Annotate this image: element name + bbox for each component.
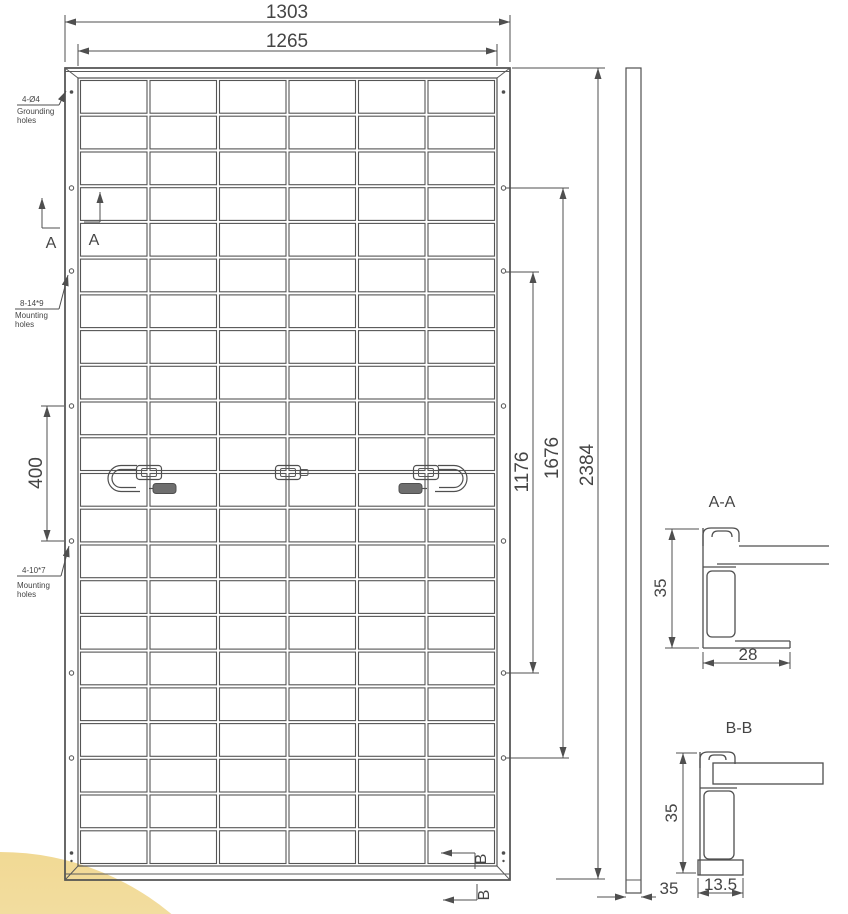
callout-grounding-line2: Grounding [17, 107, 54, 116]
dim-1676-label: 1676 [542, 437, 563, 479]
solar-cell [81, 295, 148, 328]
panel-front-view [65, 68, 510, 880]
mounting-hole [69, 539, 73, 543]
solar-cell [289, 331, 356, 364]
solar-cell [150, 616, 217, 649]
solar-cell [289, 366, 356, 399]
solar-cell [428, 152, 495, 185]
mounting-hole [69, 269, 73, 273]
frame-miter-bl [65, 866, 78, 880]
solar-cell [150, 509, 217, 542]
solar-cell [359, 295, 426, 328]
solar-cell [220, 509, 287, 542]
solar-cell [428, 223, 495, 256]
dim-1265-label: 1265 [266, 31, 308, 52]
solar-cell [220, 831, 287, 864]
drawing-svg: 1303 1265 1176 1676 2384 [0, 0, 848, 914]
solar-cell [81, 545, 148, 578]
solar-cell [81, 81, 148, 114]
engineering-drawing: 1303 1265 1176 1676 2384 [0, 0, 848, 914]
solar-cell [289, 295, 356, 328]
solar-cell [428, 724, 495, 757]
solar-cell [359, 581, 426, 614]
solar-cell [359, 652, 426, 685]
mounting-hole [501, 404, 505, 408]
solar-cell [220, 581, 287, 614]
solar-cell [150, 366, 217, 399]
solar-cell [428, 438, 495, 471]
solar-cell [220, 331, 287, 364]
solar-cell [220, 438, 287, 471]
marker-b-inner-label: B [473, 854, 490, 865]
grounding-hole [70, 851, 74, 855]
panel-side-view: 35 [597, 68, 678, 898]
solar-cell [359, 795, 426, 828]
solar-cell [81, 152, 148, 185]
aa-frame-lip-curl [712, 531, 732, 537]
solar-cell [81, 438, 148, 471]
solar-cell [81, 116, 148, 149]
mounting-hole [69, 756, 73, 760]
dimension-bb-height: 35 [662, 753, 697, 873]
marker-b-outer-label: B [476, 890, 493, 901]
solar-cell [150, 688, 217, 721]
solar-cell [220, 652, 287, 685]
solar-cell [428, 116, 495, 149]
callout-grounding-line1: 4-Ø4 [22, 95, 40, 104]
solar-cell [150, 259, 217, 292]
grounding-hole [70, 860, 72, 862]
solar-cell [359, 259, 426, 292]
solar-cell [428, 581, 495, 614]
solar-cell [220, 688, 287, 721]
mounting-hole [501, 671, 505, 675]
callout-mount-lower-line3: holes [17, 590, 36, 599]
callout-mount-upper-line1: 8-14*9 [20, 299, 44, 308]
callout-mount-lower-line1: 4-10*7 [22, 566, 46, 575]
marker-a-right-label: A [89, 232, 100, 249]
solar-cell [359, 81, 426, 114]
aa-frame-chamber [707, 571, 735, 637]
solar-cell [150, 581, 217, 614]
solar-cell [359, 831, 426, 864]
solar-cell [359, 724, 426, 757]
grounding-hole [502, 860, 504, 862]
solar-cell [81, 795, 148, 828]
solar-cell [428, 688, 495, 721]
solar-cell [289, 474, 356, 507]
callout-mount-lower-line2: Mounting [17, 581, 50, 590]
solar-cell [220, 759, 287, 792]
dim-aa-28-label: 28 [739, 645, 758, 664]
solar-cell [428, 759, 495, 792]
mounting-hole [501, 756, 505, 760]
solar-cell [428, 188, 495, 221]
callout-mounting-holes-lower: 4-10*7 Mounting holes [17, 546, 69, 599]
solar-cell [150, 795, 217, 828]
marker-a-left-label: A [46, 235, 57, 252]
solar-cell [428, 795, 495, 828]
solar-cell [81, 724, 148, 757]
solar-cell [81, 688, 148, 721]
callout-mount-upper-line2: Mounting [15, 311, 48, 320]
callout-grounding-line3: holes [17, 116, 36, 125]
dimension-height-mount-inner: 1176 [506, 272, 539, 673]
solar-cell [150, 652, 217, 685]
cell-grid [81, 81, 495, 864]
section-aa-detail: A-A 35 28 [651, 494, 829, 669]
solar-cell [289, 724, 356, 757]
bb-frame-chamber [704, 791, 734, 859]
solar-cell [359, 509, 426, 542]
callout-mounting-holes-upper: 8-14*9 Mounting holes [15, 275, 68, 329]
connector-plug-left [153, 484, 176, 494]
section-bb-title: B-B [726, 720, 753, 737]
solar-cell [220, 81, 287, 114]
solar-cell [220, 545, 287, 578]
solar-cell [150, 724, 217, 757]
solar-cell [150, 223, 217, 256]
solar-cell [359, 152, 426, 185]
solar-cell [81, 759, 148, 792]
solar-cell [289, 795, 356, 828]
solar-cell [150, 402, 217, 435]
solar-cell [150, 331, 217, 364]
solar-cell [359, 116, 426, 149]
solar-cell [428, 81, 495, 114]
solar-cell [150, 831, 217, 864]
solar-cell [220, 188, 287, 221]
solar-cell [81, 366, 148, 399]
section-bb-detail: B-B 35 13.5 [662, 720, 823, 898]
solar-cell [289, 545, 356, 578]
connector-plug-right [399, 484, 422, 494]
solar-cell [289, 652, 356, 685]
solar-cell [81, 581, 148, 614]
mounting-hole [69, 671, 73, 675]
solar-cell [289, 223, 356, 256]
solar-cell [81, 402, 148, 435]
solar-cell [428, 366, 495, 399]
solar-cell [150, 152, 217, 185]
mounting-hole [501, 269, 505, 273]
solar-cell [359, 366, 426, 399]
bb-glass-bar [713, 763, 823, 784]
solar-cell [359, 331, 426, 364]
solar-cell [220, 295, 287, 328]
solar-cell [220, 116, 287, 149]
solar-cell [150, 81, 217, 114]
solar-cell [428, 259, 495, 292]
dimension-aa-height: 35 [651, 529, 699, 648]
solar-cell [220, 402, 287, 435]
solar-cell [289, 831, 356, 864]
dimension-mount-spacing: 400 [26, 406, 64, 541]
solar-cell [289, 509, 356, 542]
section-aa-title: A-A [709, 494, 736, 511]
side-view-bar [626, 68, 641, 893]
mounting-hole [69, 404, 73, 408]
grounding-hole [70, 90, 74, 94]
solar-cell [289, 759, 356, 792]
solar-cell [150, 295, 217, 328]
mounting-hole [501, 186, 505, 190]
solar-cell [289, 581, 356, 614]
solar-cell [150, 545, 217, 578]
solar-cell [220, 223, 287, 256]
solar-cell [359, 223, 426, 256]
solar-cell [428, 295, 495, 328]
solar-cell [81, 509, 148, 542]
solar-cell [359, 188, 426, 221]
solar-cell [81, 331, 148, 364]
solar-cell [428, 545, 495, 578]
frame-miter-tr [497, 68, 510, 78]
solar-cell [81, 616, 148, 649]
solar-cell [289, 81, 356, 114]
solar-cell [150, 759, 217, 792]
dimension-side-thickness: 35 [597, 879, 678, 898]
solar-cell [359, 545, 426, 578]
solar-cell [81, 259, 148, 292]
solar-cell [220, 724, 287, 757]
solar-cell [428, 616, 495, 649]
dim-aa-35-label: 35 [651, 579, 670, 598]
solar-cell [81, 831, 148, 864]
grounding-hole [502, 851, 506, 855]
solar-cell [289, 402, 356, 435]
solar-cell [359, 402, 426, 435]
dim-side-35-label: 35 [660, 879, 679, 898]
dim-bb-35-label: 35 [662, 804, 681, 823]
solar-cell [81, 652, 148, 685]
callout-grounding-holes: 4-Ø4 Grounding holes [17, 91, 66, 125]
bb-frame-lip-curl [709, 755, 726, 760]
dim-400-label: 400 [26, 457, 47, 489]
solar-cell [220, 795, 287, 828]
solar-cell [150, 188, 217, 221]
dim-bb-13-5-label: 13.5 [704, 875, 737, 894]
dim-1303-label: 1303 [266, 2, 308, 23]
solar-cell [81, 188, 148, 221]
section-marker-b-outer: B [443, 884, 493, 900]
solar-cell [289, 688, 356, 721]
solar-cell [220, 366, 287, 399]
frame-miter-br [497, 866, 510, 880]
solar-cell [150, 116, 217, 149]
grounding-hole [502, 90, 506, 94]
solar-cell [428, 331, 495, 364]
solar-cell [289, 152, 356, 185]
solar-cell [289, 116, 356, 149]
solar-cell [220, 616, 287, 649]
frame-miter-tl [65, 68, 78, 78]
solar-cell [359, 759, 426, 792]
solar-cell [220, 259, 287, 292]
solar-cell [428, 402, 495, 435]
mounting-hole [501, 539, 505, 543]
dimension-bb-width: 13.5 [698, 875, 743, 898]
solar-cell [428, 509, 495, 542]
mounting-hole [69, 186, 73, 190]
callout-mount-upper-line3: holes [15, 320, 34, 329]
solar-cell [289, 188, 356, 221]
dim-2384-label: 2384 [577, 443, 598, 486]
solar-cell [220, 152, 287, 185]
dimension-width-inner: 1265 [78, 31, 497, 66]
dim-1176-label: 1176 [512, 452, 533, 493]
solar-cell [359, 688, 426, 721]
section-marker-a-left: A [42, 198, 60, 252]
solar-cell [428, 652, 495, 685]
solar-cell [289, 259, 356, 292]
solar-cell [289, 616, 356, 649]
solar-cell [359, 616, 426, 649]
bb-foot-block [698, 860, 743, 875]
